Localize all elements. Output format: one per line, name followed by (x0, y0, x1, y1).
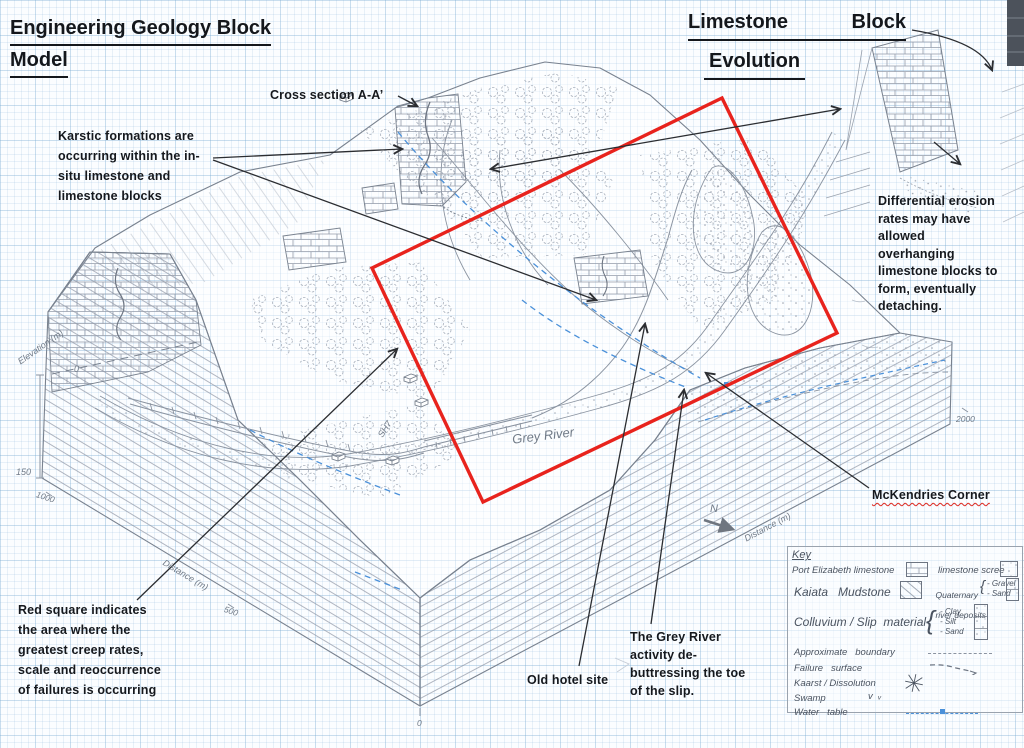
cross-section-label: Cross section A-A’ (270, 86, 383, 105)
legend-approx-boundary-label: Approximate boundary (794, 647, 895, 658)
legend-kaiata-label: Kaiata Mudstone (794, 585, 891, 599)
pe-limestone-swatch-icon (906, 562, 928, 577)
evolution-title-word1: Limestone (688, 8, 788, 37)
red-square-annotation: Red square indicates the area where the … (18, 600, 193, 700)
legend-swamp-label: Swamp (794, 693, 826, 704)
page-title: Engineering Geology Block Model (10, 14, 271, 78)
distance-zero-tick: 0 (417, 718, 422, 728)
evolution-title-line2: Evolution (704, 47, 805, 80)
grey-river-annotation: The Grey River activity de- buttressing … (630, 628, 765, 701)
swamp-symbol-icon: v ᵥ (868, 691, 881, 702)
colluvium-bracket: { (926, 605, 935, 636)
differential-erosion-annotation: Differential erosion rates may have allo… (878, 193, 1008, 316)
limestone-scree-swatch-icon (1000, 561, 1018, 577)
legend-silt-label: - Silt (940, 617, 956, 626)
elevation-150-tick: 150 (16, 467, 31, 477)
approx-boundary-symbol-icon (928, 653, 992, 654)
page-title-line1: Engineering Geology Block (10, 14, 271, 46)
legend-sand2-label: - Sand (940, 627, 964, 636)
legend-clay-label: - Clay (940, 607, 961, 616)
legend-water-table-label: Water table (794, 707, 848, 718)
page-title-line2: Model (10, 46, 68, 78)
legend-box: Key Port Elizabeth limestone limestone s… (787, 546, 1023, 713)
distance-right-2000-tick: 2000 (956, 414, 975, 424)
legend-kaarst-label: Kaarst / Dissolution (794, 678, 876, 689)
old-hotel-label: Old hotel site (527, 671, 608, 690)
scanned-geology-diagram-page: { "title": { "line1": "Engineering Geolo… (0, 0, 1024, 748)
legend-pe-limestone-label: Port Elizabeth limestone (792, 565, 894, 576)
evolution-title: Limestone Block Evolution (688, 8, 906, 80)
mckendries-label: McKendries Corner (872, 486, 990, 505)
failure-surface-symbol-icon (928, 661, 988, 675)
quaternary-swatch-icon (1006, 578, 1019, 601)
page-edge-sketch (1000, 0, 1024, 222)
north-label: N (710, 503, 718, 515)
karstic-annotation: Karstic formations are occurring within … (58, 126, 208, 206)
kaiata-swatch-icon (900, 581, 922, 599)
quaternary-bracket: { (980, 578, 985, 595)
water-table-symbol-dot (940, 709, 945, 714)
legend-title: Key (792, 549, 811, 561)
legend-colluvium-label: Colluvium / Slip material (794, 615, 926, 629)
legend-failure-surface-label: Failure surface (794, 663, 862, 674)
colluvium-swatch-icon (974, 604, 988, 640)
legend-limestone-scree-label: limestone scree (938, 565, 1005, 576)
kaarst-symbol-icon (904, 673, 924, 693)
elevation-zero-tick: 0 (74, 364, 79, 374)
evolution-title-word2: Block (852, 8, 906, 37)
